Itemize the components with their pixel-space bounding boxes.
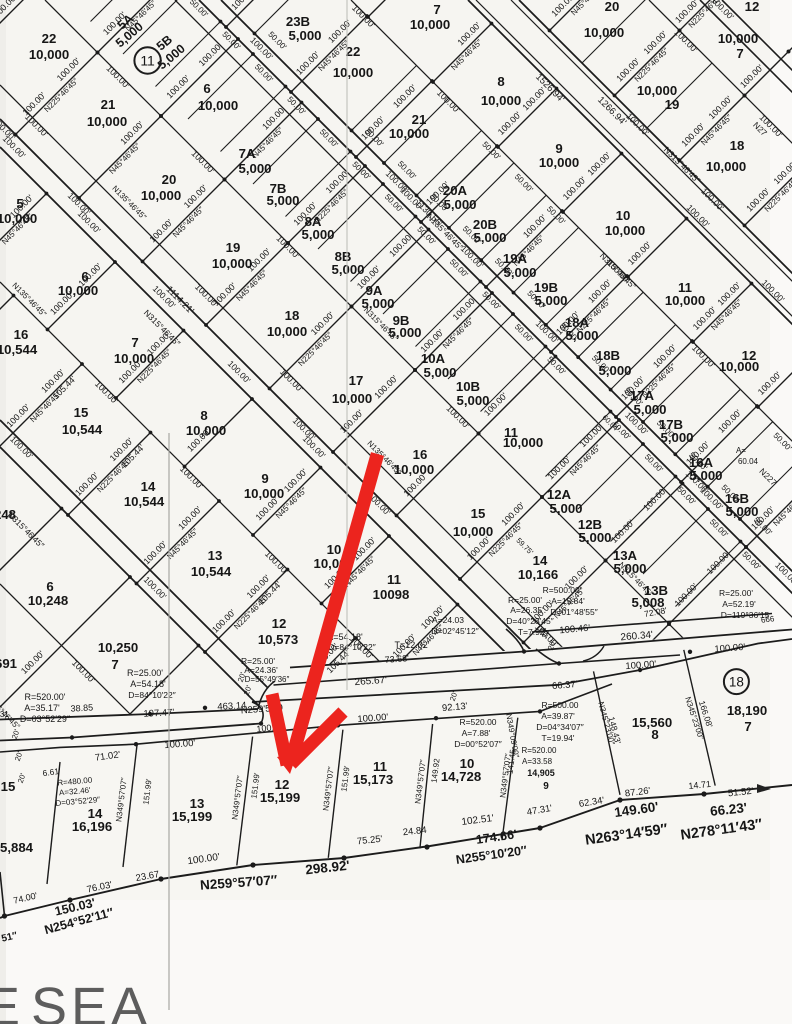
svg-text:7: 7: [744, 719, 751, 734]
svg-text:D=00°52′07″: D=00°52′07″: [454, 739, 501, 749]
svg-text:12: 12: [745, 0, 760, 14]
svg-text:A=15.84': A=15.84': [551, 596, 585, 606]
svg-text:10,000: 10,000: [198, 98, 238, 113]
svg-text:13: 13: [208, 548, 223, 563]
svg-text:5,884: 5,884: [0, 840, 34, 855]
svg-text:10,573: 10,573: [258, 632, 298, 647]
svg-text:5,000: 5,000: [331, 262, 364, 277]
svg-text:10,166: 10,166: [518, 567, 558, 582]
svg-text:A=39.87': A=39.87': [541, 711, 575, 721]
svg-text:7: 7: [131, 335, 138, 350]
svg-text:5,000: 5,000: [660, 430, 693, 445]
svg-text:10A: 10A: [421, 351, 446, 366]
svg-text:6: 6: [46, 579, 53, 594]
svg-text:5,000: 5,000: [361, 296, 394, 311]
svg-text:10,000: 10,000: [87, 114, 127, 129]
svg-text:5,000: 5,000: [503, 265, 536, 280]
svg-text:10,544: 10,544: [0, 342, 38, 357]
svg-text:19A: 19A: [503, 251, 528, 266]
svg-text:5,000: 5,000: [549, 501, 582, 516]
svg-text:92.13': 92.13': [442, 701, 469, 714]
svg-text:5,000: 5,000: [534, 293, 567, 308]
svg-text:10,544: 10,544: [191, 564, 232, 579]
svg-text:19: 19: [226, 240, 241, 255]
svg-text:5,000: 5,000: [388, 325, 421, 340]
svg-text:5,000: 5,000: [443, 197, 476, 212]
svg-text:9: 9: [543, 781, 549, 792]
svg-text:E: E: [0, 977, 20, 1024]
svg-text:11: 11: [140, 53, 155, 69]
svg-text:10,250: 10,250: [98, 640, 138, 655]
svg-text:10,248: 10,248: [28, 593, 68, 608]
svg-text:SEA: SEA: [31, 977, 151, 1024]
svg-text:10,000: 10,000: [453, 524, 493, 539]
svg-text:15,199: 15,199: [260, 790, 300, 805]
svg-text:6: 6: [81, 269, 88, 284]
svg-text:A=33.58: A=33.58: [522, 757, 553, 766]
svg-text:17A: 17A: [630, 388, 655, 403]
svg-text:10,000: 10,000: [212, 256, 252, 271]
svg-text:17: 17: [349, 373, 364, 388]
svg-text:10,000: 10,000: [665, 293, 705, 308]
svg-text:14: 14: [533, 553, 548, 568]
svg-text:100.00': 100.00': [357, 712, 389, 725]
svg-text:5,000: 5,000: [456, 393, 489, 408]
svg-text:16: 16: [413, 447, 428, 462]
svg-text:10,000: 10,000: [332, 391, 372, 406]
svg-text:100.00': 100.00': [714, 642, 746, 655]
svg-text:10,000: 10,000: [539, 155, 579, 170]
svg-text:R=500.00′: R=500.00′: [543, 585, 582, 595]
svg-text:10,000: 10,000: [394, 462, 434, 477]
svg-text:10,000: 10,000: [503, 435, 543, 450]
svg-text:10,000: 10,000: [706, 159, 746, 174]
svg-text:10,000: 10,000: [637, 83, 677, 98]
svg-text:7A: 7A: [239, 146, 256, 161]
svg-text:15: 15: [1, 779, 16, 794]
svg-text:18: 18: [285, 308, 300, 323]
svg-text:10,000: 10,000: [410, 17, 450, 32]
svg-text:100.00': 100.00': [625, 659, 657, 672]
svg-text:5: 5: [16, 196, 23, 211]
svg-text:18: 18: [730, 138, 745, 153]
svg-text:691: 691: [0, 656, 17, 671]
svg-text:22: 22: [346, 44, 361, 59]
svg-text:R=25.00': R=25.00': [127, 668, 163, 678]
svg-text:T=19.94': T=19.94': [541, 733, 574, 743]
svg-text:10,000: 10,000: [719, 359, 759, 374]
svg-text:R=520.00: R=520.00: [459, 717, 496, 727]
svg-text:8: 8: [200, 408, 207, 423]
svg-text:10,000: 10,000: [186, 423, 226, 438]
svg-text:10,544: 10,544: [124, 494, 165, 509]
svg-text:10,000: 10,000: [58, 283, 98, 298]
svg-text:10,000: 10,000: [141, 188, 181, 203]
svg-text:23B: 23B: [286, 14, 310, 29]
svg-text:20: 20: [162, 172, 177, 187]
svg-text:5,000: 5,000: [565, 328, 598, 343]
svg-text:A=: A=: [736, 446, 746, 455]
svg-text:A=26.35': A=26.35': [510, 605, 544, 615]
svg-text:66.37': 66.37': [552, 679, 579, 692]
svg-text:21: 21: [101, 97, 116, 112]
svg-text:D=40°23′45″: D=40°23′45″: [506, 616, 553, 626]
svg-text:7.31: 7.31: [0, 710, 9, 719]
svg-text:18: 18: [729, 674, 744, 689]
svg-text:5,000: 5,000: [633, 402, 666, 417]
svg-text:10B: 10B: [456, 379, 480, 394]
svg-text:10098: 10098: [373, 587, 410, 602]
svg-text:14: 14: [141, 479, 156, 494]
svg-text:6: 6: [203, 81, 210, 96]
svg-text:5,000: 5,000: [423, 365, 456, 380]
svg-text:16,196: 16,196: [72, 819, 112, 834]
svg-text:10,000: 10,000: [605, 223, 645, 238]
svg-text:R=520.00': R=520.00': [24, 692, 65, 702]
svg-text:R=25.00': R=25.00': [508, 595, 542, 605]
svg-text:10: 10: [327, 542, 342, 557]
svg-text:20A: 20A: [443, 183, 468, 198]
svg-text:16: 16: [14, 327, 29, 342]
svg-text:5,000: 5,000: [725, 504, 758, 519]
svg-text:11: 11: [387, 572, 401, 587]
svg-text:A=35.17': A=35.17': [24, 703, 60, 713]
svg-text:15,199: 15,199: [172, 809, 212, 824]
svg-text:5,000: 5,000: [598, 363, 631, 378]
svg-text:7: 7: [736, 46, 743, 61]
svg-text:20: 20: [605, 0, 620, 14]
svg-text:265.67': 265.67': [354, 675, 387, 688]
svg-text:5,000: 5,000: [689, 468, 722, 483]
svg-text:5,000: 5,000: [578, 530, 611, 545]
svg-text:5,000: 5,000: [473, 230, 506, 245]
svg-text:38.85: 38.85: [70, 702, 93, 713]
svg-text:10,544: 10,544: [62, 422, 103, 437]
svg-text:5,000: 5,000: [238, 161, 271, 176]
svg-text:D=02°45′12″: D=02°45′12″: [431, 626, 478, 636]
svg-text:10,000: 10,000: [267, 324, 307, 339]
svg-text:D=55°49′36″: D=55°49′36″: [245, 675, 290, 684]
svg-text:10,000: 10,000: [389, 126, 429, 141]
svg-text:197.47': 197.47': [143, 707, 175, 720]
svg-text:A=24.36': A=24.36': [244, 665, 278, 675]
svg-text:15,173: 15,173: [353, 772, 393, 787]
svg-text:R=500.00: R=500.00: [541, 700, 578, 710]
svg-text:9: 9: [261, 471, 268, 486]
svg-text:10: 10: [616, 208, 631, 223]
svg-text:14,728: 14,728: [441, 769, 481, 784]
svg-text:21: 21: [412, 112, 427, 127]
svg-text:10,000: 10,000: [584, 25, 624, 40]
svg-text:15: 15: [471, 506, 486, 521]
svg-text:10,000: 10,000: [481, 93, 521, 108]
svg-text:10,000: 10,000: [29, 47, 69, 62]
svg-text:15: 15: [74, 405, 89, 420]
svg-text:19: 19: [665, 97, 680, 112]
svg-text:A=24.03: A=24.03: [432, 615, 464, 625]
svg-text:12A: 12A: [547, 487, 572, 502]
svg-text:14,905: 14,905: [527, 768, 555, 778]
svg-text:10,000: 10,000: [333, 65, 373, 80]
svg-text:7: 7: [433, 2, 440, 17]
svg-text:18B: 18B: [596, 348, 620, 363]
svg-text:D=04°34′07″: D=04°34′07″: [536, 722, 583, 732]
svg-text:5,000: 5,000: [266, 193, 299, 208]
svg-text:A=54.18': A=54.18': [130, 679, 166, 689]
svg-text:18,190: 18,190: [727, 703, 767, 718]
svg-text:A=7.88': A=7.88': [462, 728, 491, 738]
svg-text:R=520.00: R=520.00: [522, 746, 557, 755]
svg-text:D=01°48′55″: D=01°48′55″: [550, 607, 597, 617]
svg-text:10,000: 10,000: [114, 351, 154, 366]
svg-text:60.04: 60.04: [738, 457, 759, 466]
svg-text:22: 22: [42, 31, 57, 46]
svg-text:D=03°52′29″: D=03°52′29″: [20, 714, 71, 724]
svg-text:7: 7: [111, 657, 118, 672]
svg-text:12: 12: [272, 616, 287, 631]
svg-text:10,000: 10,000: [718, 31, 758, 46]
svg-text:10,000: 10,000: [0, 211, 37, 226]
svg-text:9: 9: [555, 141, 562, 156]
svg-text:5,000: 5,000: [288, 28, 321, 43]
svg-text:5,000: 5,000: [301, 227, 334, 242]
svg-text:8: 8: [497, 74, 504, 89]
svg-text:R=25.00': R=25.00': [719, 588, 753, 598]
svg-text:5,000: 5,000: [613, 561, 646, 576]
svg-text:8: 8: [651, 727, 658, 742]
svg-text:10,000: 10,000: [244, 486, 284, 501]
svg-text:A=52.19': A=52.19': [722, 599, 756, 609]
svg-text:T=12.02′: T=12.02′: [395, 640, 430, 650]
svg-text:73.68': 73.68': [384, 653, 409, 665]
svg-text:666: 666: [760, 614, 775, 625]
svg-text:D=84°10′22″: D=84°10′22″: [328, 642, 375, 652]
